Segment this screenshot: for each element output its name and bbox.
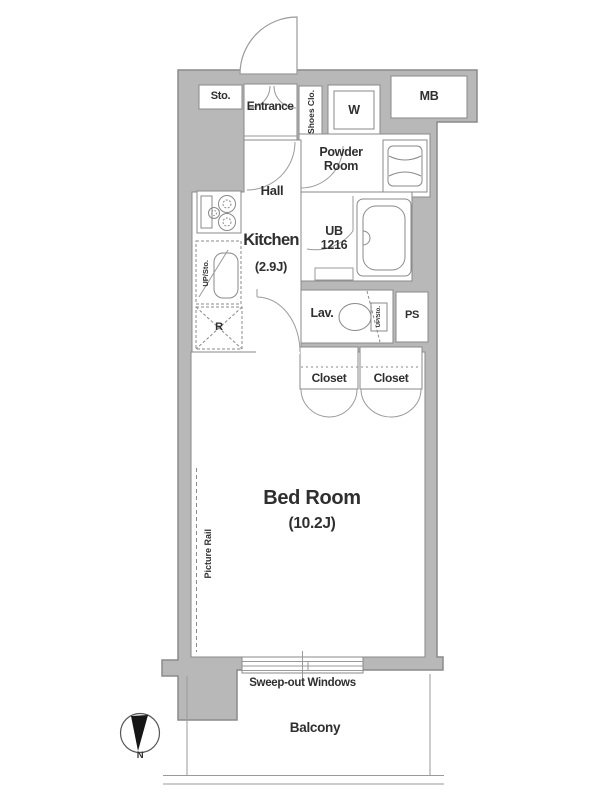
bedroom-label: Bed Room [212,487,412,509]
unit-bath-label: UB [309,224,359,238]
hall-label: Hall [244,184,300,199]
bedroom-size-label: (10.2J) [212,515,412,532]
shoes-closet-label: Shoes Clo. [299,87,322,137]
sweep-out-windows-label: Sweep-out Windows [232,677,373,690]
closet-left-label: Closet [300,372,358,385]
entrance-exterior-door-arc [240,17,297,74]
kitchen-size-label: (2.9J) [238,260,304,275]
picture-rail-label: Picture Rail [200,518,216,590]
floor-plan: Sto. Entrance Shoes Clo. W MB Powder Roo… [0,0,600,800]
powder-room-label: Powder Room [306,145,376,173]
compass-needle-icon [131,715,148,751]
entrance-label: Entrance [242,100,298,113]
bath-step [315,268,353,280]
compass-north-label: N [128,751,152,762]
closet-right-label: Closet [360,372,422,385]
refrigerator-label: R [197,321,241,333]
balcony-label: Balcony [240,720,390,735]
toilet-upper-storage-label: UP/Sto. [371,303,387,331]
lavatory-label: Lav. [301,306,343,320]
kitchen-label: Kitchen [238,231,304,249]
kitchen-sink [214,253,238,298]
meter-box-label: MB [391,89,467,103]
unit-bath-size-label: 1216 [309,238,359,252]
doorway-eraser [256,350,300,354]
toilet-bowl [339,304,371,331]
pipe-space-label: PS [398,309,426,321]
kitchen-upper-storage-label: UP/Sto. [198,252,212,294]
storage-label: Sto. [199,90,242,102]
washing-machine-label: W [334,103,374,117]
